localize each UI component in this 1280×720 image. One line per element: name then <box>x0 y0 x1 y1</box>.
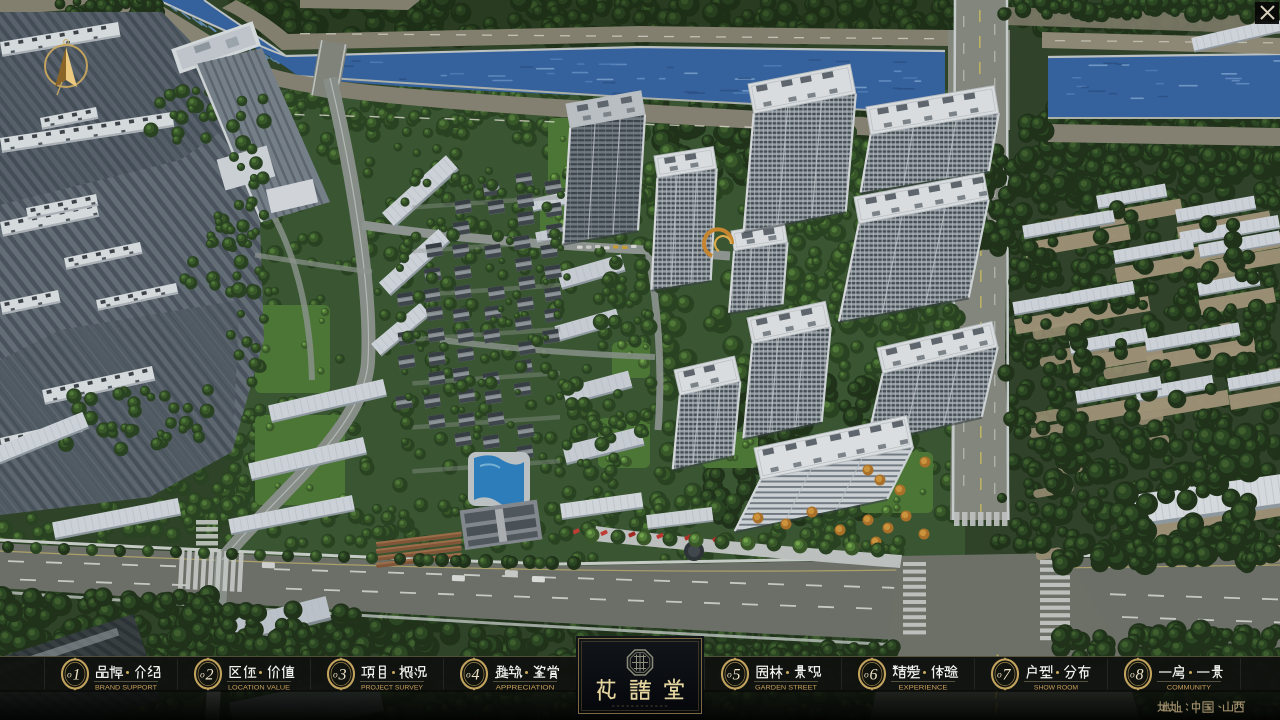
svg-text:3: 3 <box>338 667 347 684</box>
svg-text:1: 1 <box>73 667 81 684</box>
svg-text:5: 5 <box>733 667 741 684</box>
svg-text:PROJECT SURVEY: PROJECT SURVEY <box>361 686 423 692</box>
svg-text:GARDEN STREET: GARDEN STREET <box>755 686 817 692</box>
svg-text:o: o <box>67 671 72 681</box>
svg-text:o: o <box>1130 671 1135 681</box>
svg-text:LOCATION VALUE: LOCATION VALUE <box>228 686 290 692</box>
svg-text:o: o <box>333 671 338 681</box>
svg-text:6: 6 <box>870 667 878 684</box>
svg-text:2: 2 <box>206 667 214 684</box>
svg-text:o: o <box>200 671 205 681</box>
svg-text:APPRECIATION: APPRECIATION <box>496 686 555 692</box>
svg-text:8: 8 <box>1136 667 1144 684</box>
svg-text:EXPERIENCE: EXPERIENCE <box>899 686 948 692</box>
svg-text:BRAND SUPPORT: BRAND SUPPORT <box>95 686 157 692</box>
svg-text:COMMUNITY: COMMUNITY <box>1167 686 1211 692</box>
svg-text:o: o <box>466 671 471 681</box>
svg-text:4: 4 <box>472 667 480 684</box>
svg-text:o: o <box>997 671 1002 681</box>
svg-text:o: o <box>864 671 869 681</box>
svg-text:7: 7 <box>1003 667 1012 684</box>
svg-text:SHOW ROOM: SHOW ROOM <box>1034 686 1078 692</box>
svg-text:o: o <box>727 671 732 681</box>
